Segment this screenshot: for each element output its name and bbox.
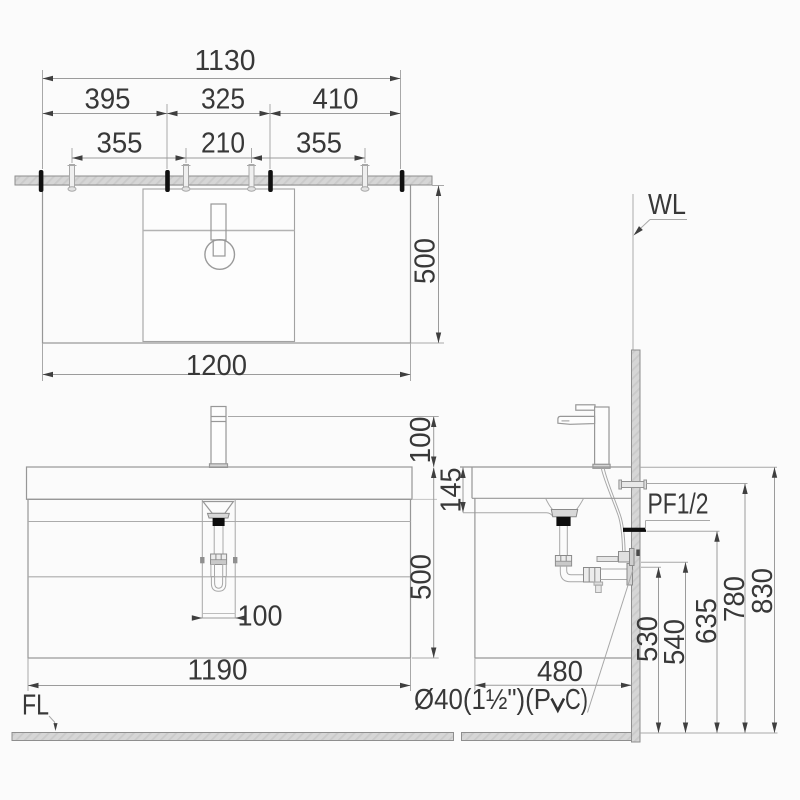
svg-text:PF1/2: PF1/2 — [648, 489, 709, 521]
svg-text:830: 830 — [747, 568, 779, 614]
svg-text:1130: 1130 — [195, 45, 256, 77]
svg-text:145: 145 — [436, 468, 468, 513]
svg-text:355: 355 — [296, 128, 342, 160]
svg-text:100: 100 — [405, 417, 437, 464]
svg-text:325: 325 — [201, 84, 245, 116]
svg-text:500: 500 — [410, 238, 442, 284]
svg-text:C): C) — [565, 684, 588, 716]
svg-text:210: 210 — [201, 128, 245, 160]
svg-text:355: 355 — [97, 128, 143, 160]
svg-text:FL: FL — [22, 690, 49, 722]
svg-text:540: 540 — [659, 619, 691, 665]
svg-text:1190: 1190 — [188, 655, 248, 687]
svg-text:410: 410 — [313, 84, 359, 116]
svg-text:Ø40(1½")(P: Ø40(1½")(P — [414, 684, 551, 716]
svg-text:WL: WL — [648, 189, 686, 221]
svg-text:395: 395 — [85, 84, 131, 116]
svg-text:1200: 1200 — [186, 350, 247, 382]
svg-text:500: 500 — [406, 554, 438, 600]
svg-text:100: 100 — [238, 601, 283, 633]
